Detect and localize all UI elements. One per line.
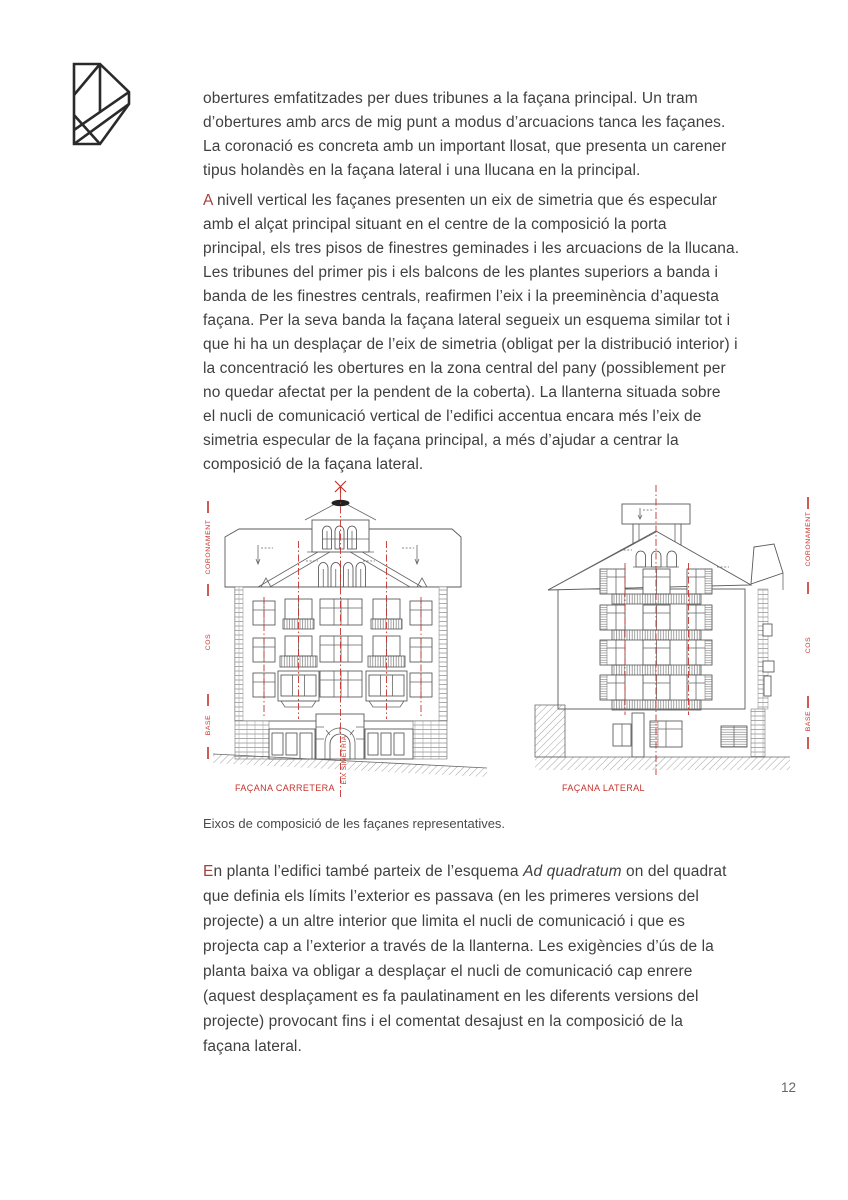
paragraph-text: obertures emfatitzades per dues tribunes… (203, 90, 726, 179)
axis-crossed-arrows-mark (335, 481, 346, 493)
quoin-strip-left (235, 587, 243, 721)
text-column: obertures emfatitzades per dues tribunes… (203, 0, 835, 1059)
ground-line (535, 757, 790, 770)
facade-elevations-figure: CORONAMENT COS BASE (195, 477, 815, 807)
red-initial-letter: A (203, 192, 213, 209)
paragraph-nivell-vertical: A nivell vertical les façanes presenten … (203, 189, 835, 477)
side-gallery-box (763, 661, 774, 672)
side-gallery-box (763, 624, 772, 636)
side-door (632, 713, 644, 757)
retaining-wall (535, 705, 565, 757)
paragraph-text: on del quadrat que definia els límits l’… (203, 863, 727, 1055)
document-page: obertures emfatitzades per dues tribunes… (0, 0, 848, 1200)
facade-carretera-title: FAÇANA CARRETERA (235, 783, 335, 793)
figure-caption: Eixos de composició de les façanes repre… (203, 815, 835, 832)
facade-lateral-drawing: CORONAMENT COS BASE FAÇANA LATERAL (535, 485, 812, 793)
logo-outline (74, 64, 129, 144)
red-initial-letter: E (203, 863, 213, 880)
central-geminated-windows (320, 599, 362, 697)
zone-tick (207, 694, 209, 706)
zone-ruler-right: CORONAMENT COS BASE (805, 497, 812, 749)
paragraph-text: nivell vertical les façanes presenten un… (203, 192, 739, 473)
secondary-roof-facet (751, 544, 783, 584)
zone-label-coronament: CORONAMENT (805, 511, 812, 566)
publisher-logo-icon (72, 62, 132, 146)
zone-tick (207, 584, 209, 596)
zone-ruler-left: CORONAMENT COS BASE (205, 501, 212, 759)
rusticated-corner-right (413, 721, 447, 759)
facade-carretera-drawing: CORONAMENT COS BASE (205, 481, 487, 799)
quoin-strip-right (439, 587, 447, 721)
page-number: 12 (781, 1080, 796, 1095)
zone-tick (207, 747, 209, 759)
zone-label-base: BASE (205, 715, 212, 736)
zone-tick (807, 737, 809, 749)
zone-label-base: BASE (805, 711, 812, 732)
ground-floor (535, 705, 765, 757)
facade-lateral-title: FAÇANA LATERAL (562, 783, 645, 793)
paragraph-obertures: obertures emfatitzades per dues tribunes… (203, 87, 835, 183)
eix-simetria-label: EIX SIMETRIA (341, 735, 348, 784)
zone-tick (807, 497, 809, 509)
zone-tick (207, 501, 209, 513)
building-lateral (535, 504, 790, 770)
side-door (764, 676, 771, 696)
brick-pillar (751, 709, 765, 757)
zone-tick (807, 696, 809, 708)
latin-term-italic: Ad quadratum (523, 863, 622, 880)
paragraph-en-planta: En planta l’edifici també parteix de l’e… (203, 859, 835, 1059)
zone-label-coronament: CORONAMENT (205, 519, 212, 574)
rusticated-corner-left (235, 721, 269, 759)
zone-label-cos: COS (205, 634, 212, 651)
zone-label-cos: COS (805, 637, 812, 654)
paragraph-text: n planta l’edifici també parteix de l’es… (213, 863, 523, 880)
building-carretera (213, 500, 487, 777)
entrance-portal (316, 714, 364, 759)
zone-tick (807, 582, 809, 594)
